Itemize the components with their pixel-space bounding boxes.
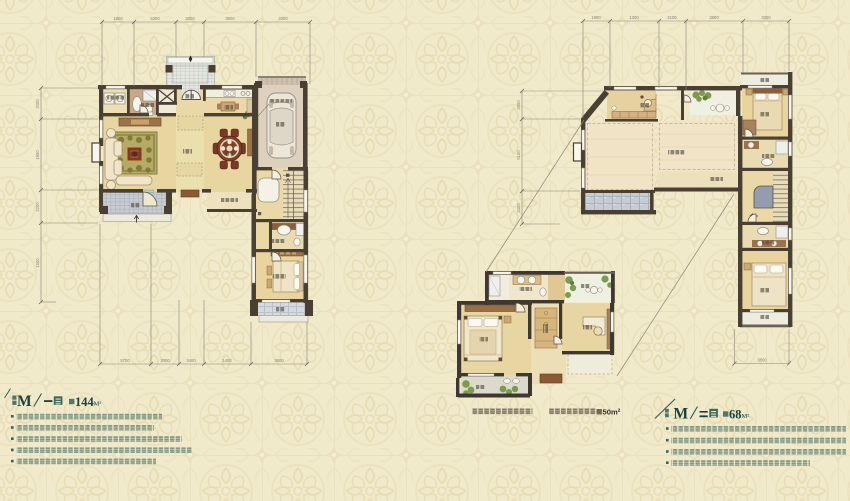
svg-text:3600: 3600 (274, 358, 284, 363)
svg-text:3400: 3400 (186, 358, 196, 363)
svg-text:M: M (674, 406, 689, 423)
svg-text:1400: 1400 (222, 358, 232, 363)
svg-text:1900: 1900 (35, 150, 40, 160)
svg-text:5700: 5700 (120, 358, 130, 363)
svg-text:M²: M² (742, 413, 750, 420)
svg-text:2100: 2100 (667, 15, 677, 20)
svg-text:2850: 2850 (516, 100, 521, 110)
svg-text:68: 68 (729, 408, 742, 422)
svg-text:2000: 2000 (160, 358, 170, 363)
svg-text:144: 144 (75, 395, 95, 409)
svg-text:2200: 2200 (35, 202, 40, 212)
svg-text:M: M (17, 393, 32, 410)
svg-text:3800: 3800 (757, 358, 767, 363)
svg-text:3800: 3800 (709, 15, 719, 20)
svg-text:3300: 3300 (761, 15, 771, 20)
svg-text:1500: 1500 (35, 258, 40, 268)
svg-text:2000: 2000 (185, 16, 195, 21)
svg-text:5100: 5100 (516, 150, 521, 160)
svg-text:50m²: 50m² (603, 408, 621, 417)
svg-text:1800: 1800 (113, 16, 123, 21)
svg-text:1900: 1900 (591, 15, 601, 20)
svg-text:2000: 2000 (35, 99, 40, 109)
svg-text:5300: 5300 (150, 16, 160, 21)
svg-text:M²: M² (94, 401, 102, 408)
svg-text:2400: 2400 (516, 203, 521, 213)
svg-text:3900: 3900 (225, 16, 235, 21)
svg-text:3300: 3300 (278, 16, 288, 21)
svg-text:1300: 1300 (629, 15, 639, 20)
